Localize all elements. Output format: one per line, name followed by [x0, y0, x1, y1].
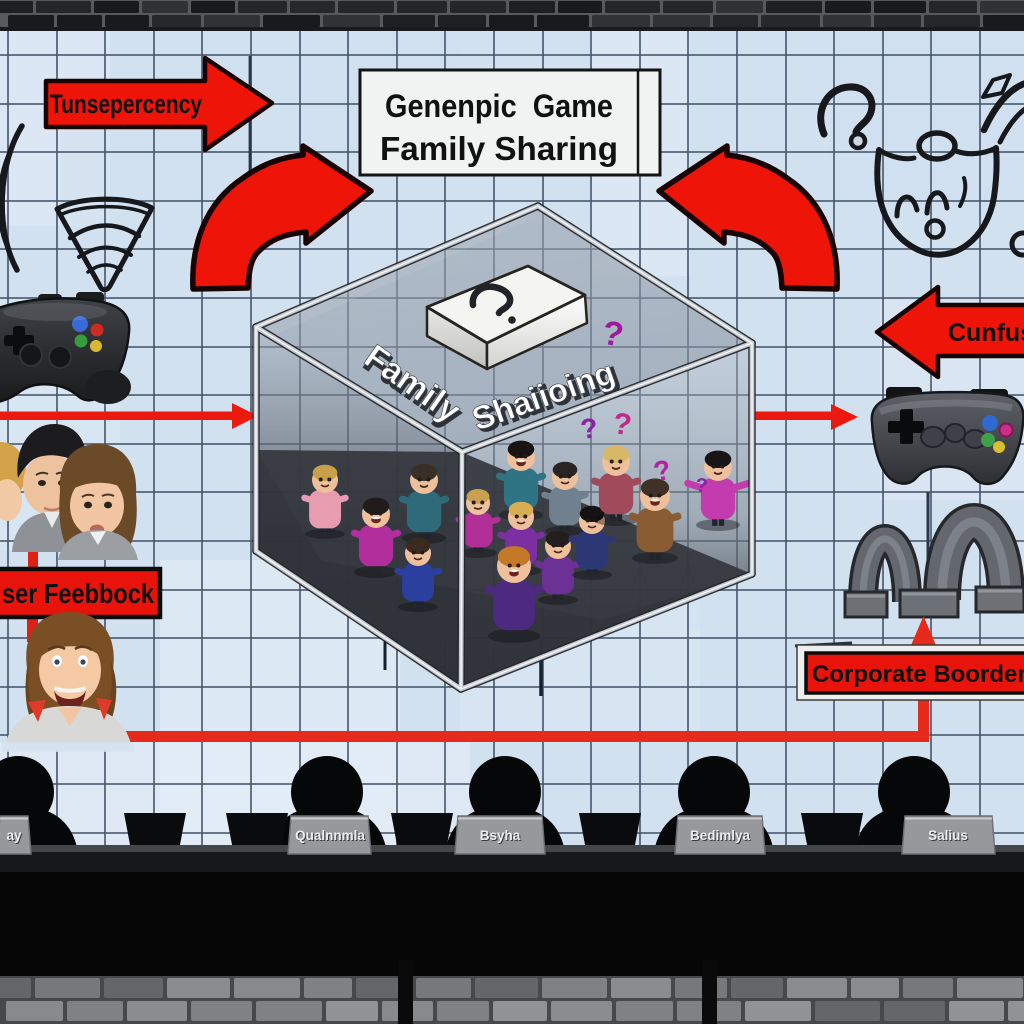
svg-text:?: ?	[694, 474, 708, 497]
svg-text:Bsyha: Bsyha	[480, 828, 521, 843]
svg-text:Qualnnmla: Qualnnmla	[295, 828, 365, 843]
svg-text:Genenpic Game: Genenpic Game	[385, 88, 613, 124]
svg-text:ser Feebbock: ser Feebbock	[2, 578, 154, 609]
svg-text:?: ?	[579, 412, 599, 445]
svg-text:Salius: Salius	[928, 828, 968, 843]
svg-text:Tunsepercency: Tunsepercency	[50, 89, 202, 119]
svg-text:Corporate Boorderrpooo: Corporate Boorderrpooo	[812, 661, 1024, 688]
svg-text:ay: ay	[6, 828, 22, 843]
svg-text:Cunfuss: Cunfuss	[948, 319, 1024, 347]
svg-text:Bedimlya: Bedimlya	[690, 828, 751, 843]
svg-text:Family Sharing: Family Sharing	[380, 130, 618, 167]
